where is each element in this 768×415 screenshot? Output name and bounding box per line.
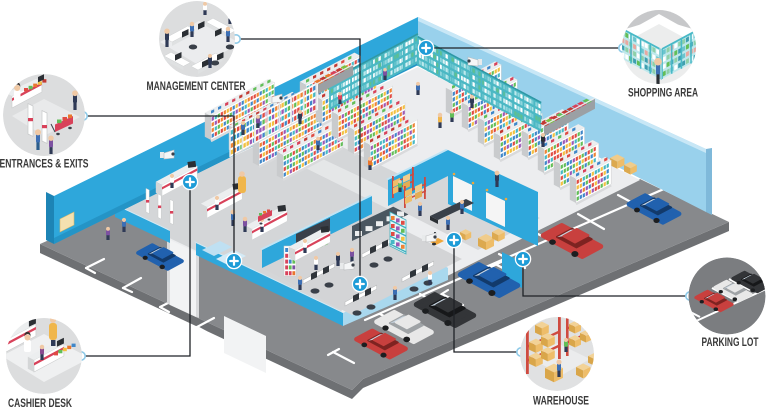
svg-text:WAREHOUSE: WAREHOUSE: [533, 396, 589, 408]
svg-text:ENTRANCES & EXITS: ENTRANCES & EXITS: [0, 159, 89, 171]
svg-text:SHOPPING AREA: SHOPPING AREA: [628, 88, 698, 100]
svg-text:CASHIER DESK: CASHIER DESK: [8, 398, 73, 410]
svg-text:MANAGEMENT CENTER: MANAGEMENT CENTER: [147, 81, 247, 93]
svg-text:PARKING LOT: PARKING LOT: [702, 337, 759, 349]
